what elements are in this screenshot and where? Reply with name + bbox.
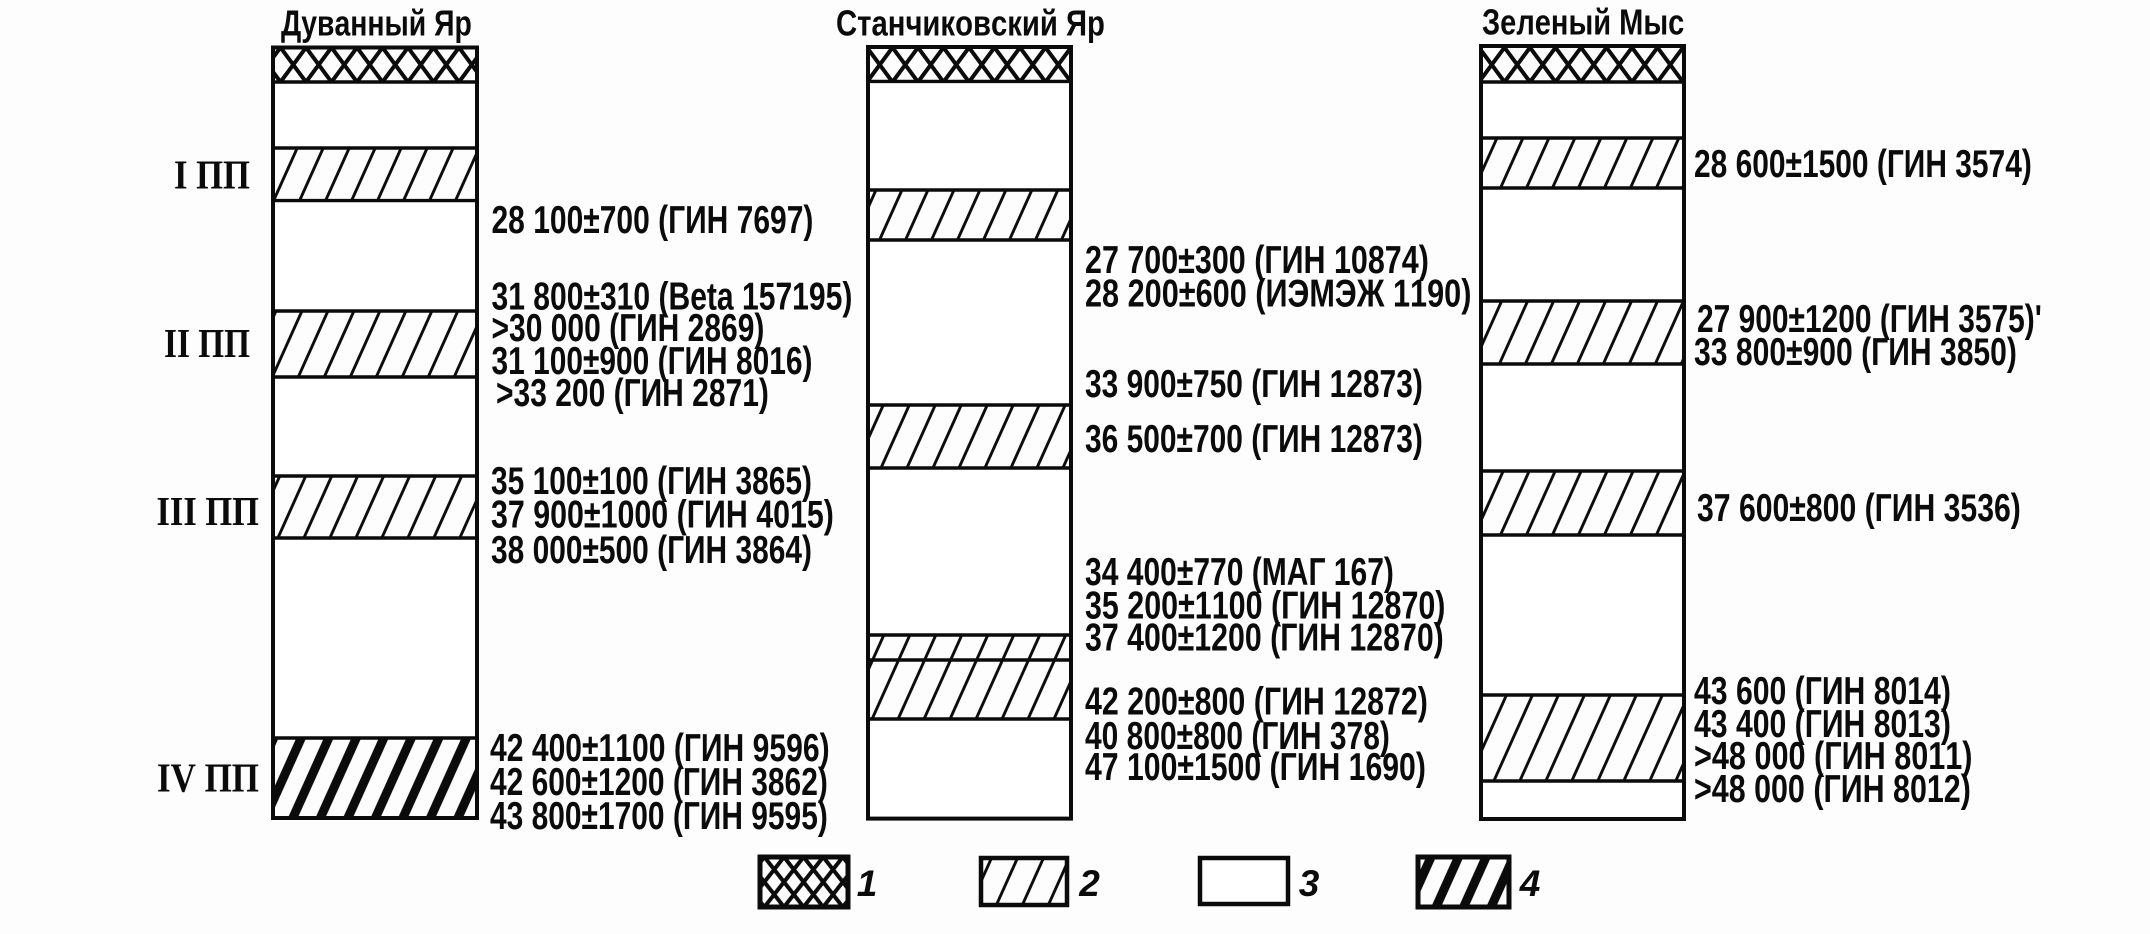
svg-text:33 900±750 (ГИН 12873): 33 900±750 (ГИН 12873) [1085,363,1423,406]
svg-text:Дуванный Яр: Дуванный Яр [281,3,472,43]
svg-text:37 400±1200 (ГИН 12870): 37 400±1200 (ГИН 12870) [1085,616,1444,660]
svg-text:3: 3 [1299,863,1320,904]
svg-text:III ПП: III ПП [157,489,259,534]
svg-text:28 100±700 (ГИН 7697): 28 100±700 (ГИН 7697) [492,199,814,242]
svg-text:1: 1 [857,863,878,904]
svg-text:37 600±800 (ГИН 3536): 37 600±800 (ГИН 3536) [1697,486,2021,530]
svg-text:33 800±900 (ГИН 3850): 33 800±900 (ГИН 3850) [1694,330,2017,374]
svg-text:47 100±1500 (ГИН 1690): 47 100±1500 (ГИН 1690) [1085,745,1426,789]
svg-text:Зеленый Мыс: Зеленый Мыс [1482,1,1684,42]
svg-text:II ПП: II ПП [164,322,250,367]
svg-text:43 800±1700 (ГИН 9595): 43 800±1700 (ГИН 9595) [490,795,828,838]
svg-text:2: 2 [1078,863,1100,904]
svg-text:>48 000 (ГИН 8012): >48 000 (ГИН 8012) [1694,767,1971,810]
svg-text:38 000±500 (ГИН 3864): 38 000±500 (ГИН 3864) [491,529,812,572]
svg-text:Станчиковский Яр: Станчиковский Яр [836,3,1105,44]
svg-text:36 500±700 (ГИН 12873): 36 500±700 (ГИН 12873) [1085,418,1423,461]
svg-text:4: 4 [1519,863,1541,904]
svg-text:28 200±600 (ИЭМЭЖ 1190): 28 200±600 (ИЭМЭЖ 1190) [1085,272,1471,315]
svg-text:>33 200 (ГИН 2871): >33 200 (ГИН 2871) [496,372,769,415]
svg-text:28 600±1500 (ГИН 3574): 28 600±1500 (ГИН 3574) [1694,143,2032,186]
svg-text:I ПП: I ПП [174,153,250,198]
svg-text:IV ПП: IV ПП [157,756,259,801]
